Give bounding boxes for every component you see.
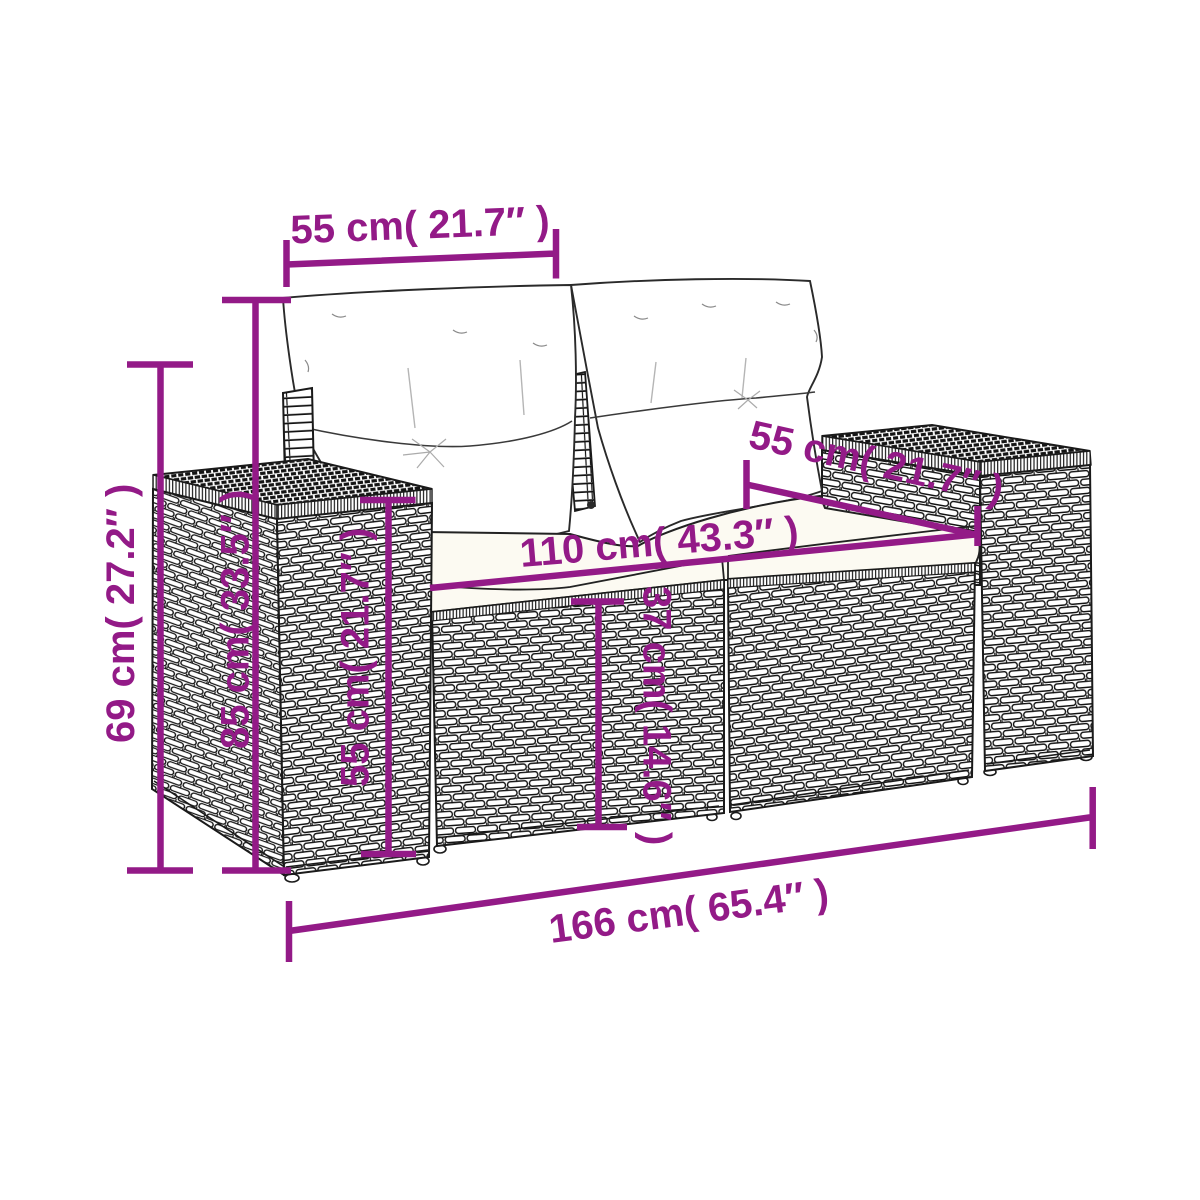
svg-text:55 cm( 21.7″ ): 55 cm( 21.7″ ) [334,528,378,787]
svg-text:69 cm( 27.2″ ): 69 cm( 27.2″ ) [99,484,143,743]
svg-text:85 cm( 33.5″ ): 85 cm( 33.5″ ) [214,490,258,749]
svg-text:37 cm( 14.6″ ): 37 cm( 14.6″ ) [635,586,679,845]
